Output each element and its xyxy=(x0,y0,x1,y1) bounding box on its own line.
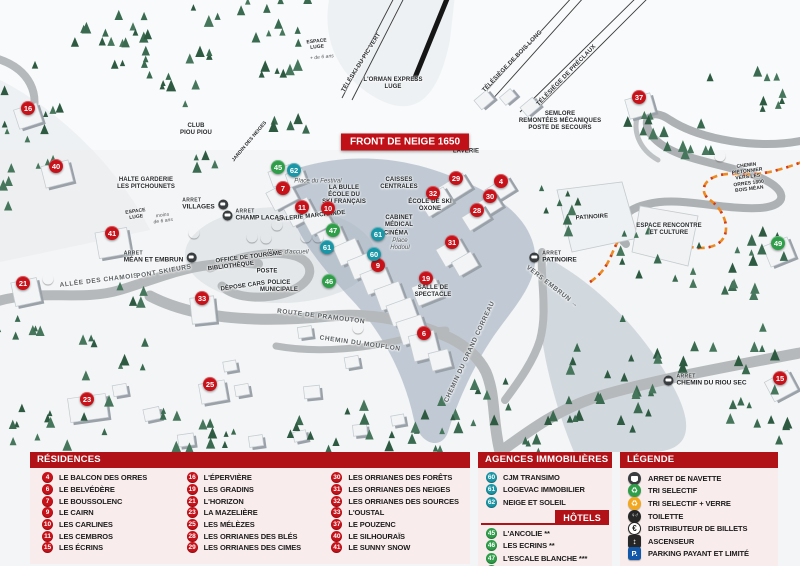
legend-item-label: LOGEVAC IMMOBILIER xyxy=(503,485,585,494)
legend-item-number: 16 xyxy=(187,472,198,483)
legend-item-label: LES ÉCRINS xyxy=(59,543,103,552)
legend-item: 45 L'ANCOLIE ** xyxy=(481,527,609,540)
legend-item-label: TRI SELECTIF + VERRE xyxy=(648,499,731,508)
legend-item: 33 L'OUSTAL xyxy=(322,507,467,519)
hotels-header: HÔTELS xyxy=(481,510,609,525)
legend-item-label: LE BOUSSOLENC xyxy=(59,497,122,506)
agences-panel: AGENCES IMMOBILIÈRES 60 CJM TRANSIMO 61 … xyxy=(478,452,612,566)
legend-icon-item: PARKING PAYANT ET LIMITÉ xyxy=(623,548,775,561)
legend-item-label: LES ORRIANES DES CIMES xyxy=(204,543,301,552)
legend-item: 25 LES MÉLÈZES xyxy=(178,519,323,531)
legend-item-number: 46 xyxy=(486,540,497,551)
legend-item-label: LES CEMBROS xyxy=(59,532,113,541)
legend-item-label: LES ECRINS ** xyxy=(503,541,555,550)
legend-item-label: PARKING PAYANT ET LIMITÉ xyxy=(648,549,749,558)
legend-item: 7 LE BOUSSOLENC xyxy=(33,495,178,507)
bus-icon xyxy=(628,472,641,485)
legend-item: 28 LES ORRIANES DES BLÉS xyxy=(178,530,323,542)
agences-list: 60 CJM TRANSIMO 61 LOGEVAC IMMOBILIER 62… xyxy=(481,471,609,509)
legend-item-label: LES ORRIANES DES NEIGES xyxy=(348,485,450,494)
toilet-icon xyxy=(628,510,641,523)
legend-item-number: 10 xyxy=(42,519,53,530)
legend-item: 41 LE SUNNY SNOW xyxy=(322,542,467,554)
residences-col-2: 16 L'ÉPERVIÈRE 19 LES GRADINS 21 L'HORIZ… xyxy=(178,472,323,559)
legend-item-number: 28 xyxy=(187,531,198,542)
legend-item: 19 LES GRADINS xyxy=(178,484,323,496)
legend-item-label: NEIGE ET SOLEIL xyxy=(503,498,566,507)
legend-item-number: 60 xyxy=(486,472,497,483)
hotels-list: 45 L'ANCOLIE ** 46 LES ECRINS ** 47 L'ES… xyxy=(481,527,609,566)
residences-col-3: 30 LES ORRIANES DES FORÊTS 31 LES ORRIAN… xyxy=(322,472,467,559)
legend-item: 15 LES ÉCRINS xyxy=(33,542,178,554)
legend-item-label: L'ESCALE BLANCHE *** xyxy=(503,554,587,563)
parking-icon xyxy=(628,547,641,560)
legend-item: 4 LE BALCON DES ORRES xyxy=(33,472,178,484)
residences-panel: RÉSIDENCES 4 LE BALCON DES ORRES 6 LE BE… xyxy=(30,452,470,564)
agences-header: AGENCES IMMOBILIÈRES xyxy=(478,452,612,468)
legend-item-label: L'OUSTAL xyxy=(348,508,384,517)
legend-item-number: 32 xyxy=(331,496,342,507)
legend-item-number: 30 xyxy=(331,472,342,483)
legend-icon-item: DISTRIBUTEUR DE BILLETS xyxy=(623,522,775,535)
legend-item-number: 6 xyxy=(42,484,53,495)
legend-item: 30 LES ORRIANES DES FORÊTS xyxy=(322,472,467,484)
legend-item-label: LES CARLINES xyxy=(59,520,113,529)
legend-item-number: 25 xyxy=(187,519,198,530)
legend-item-number: 4 xyxy=(42,472,53,483)
legende-header: LÉGENDE xyxy=(620,452,778,468)
legend-item-number: 37 xyxy=(331,519,342,530)
legende-panel: LÉGENDE ARRET DE NAVETTE TRI SELECTIF TR… xyxy=(620,452,778,566)
legend-item-label: LES ORRIANES DES BLÉS xyxy=(204,532,298,541)
legend-item: 60 CJM TRANSIMO xyxy=(481,471,609,484)
legend-item: 31 LES ORRIANES DES NEIGES xyxy=(322,484,467,496)
legend-item: 32 LES ORRIANES DES SOURCES xyxy=(322,495,467,507)
legend-item-number: 11 xyxy=(42,531,53,542)
recycle-yellow-icon xyxy=(628,497,641,510)
legend-item-label: LE CAIRN xyxy=(59,508,94,517)
legend-item: 6 LE BELVÉDÈRE xyxy=(33,484,178,496)
legend-item: 16 L'ÉPERVIÈRE xyxy=(178,472,323,484)
legend-item: 47 L'ESCALE BLANCHE *** xyxy=(481,552,609,565)
legend-item-number: 9 xyxy=(42,507,53,518)
legend-item-label: LES ORRIANES DES SOURCES xyxy=(348,497,459,506)
legend-item-number: 47 xyxy=(486,553,497,564)
legend-item-number: 29 xyxy=(187,542,198,553)
legend-item-label: TRI SELECTIF xyxy=(648,486,697,495)
legend-item: 10 LES CARLINES xyxy=(33,519,178,531)
legend-item: 29 LES ORRIANES DES CIMES xyxy=(178,542,323,554)
legend-item-label: L'ANCOLIE ** xyxy=(503,529,550,538)
legend-item-label: L'ÉPERVIÈRE xyxy=(204,473,252,482)
legend-item-label: LE BELVÉDÈRE xyxy=(59,485,115,494)
legend-icon-item: ASCENSEUR xyxy=(623,535,775,548)
legend-item-label: LES GRADINS xyxy=(204,485,254,494)
recycle-green-icon xyxy=(628,484,641,497)
legend-icon-item: TRI SELECTIF + VERRE xyxy=(623,497,775,510)
resort-map: TÉLÉSKI DU PIC VERTL'ORMAN EXPRESS LUGET… xyxy=(0,0,800,566)
residences-col-1: 4 LE BALCON DES ORRES 6 LE BELVÉDÈRE 7 L… xyxy=(33,472,178,559)
legend-item-label: ASCENSEUR xyxy=(648,537,694,546)
legend-item-label: LE POUZENC xyxy=(348,520,395,529)
legend-item: 9 LE CAIRN xyxy=(33,507,178,519)
legend-item-number: 41 xyxy=(331,542,342,553)
legend-item-label: LE BALCON DES ORRES xyxy=(59,473,147,482)
hotels-title: HÔTELS xyxy=(555,510,609,525)
legend-item-label: L'HORIZON xyxy=(204,497,244,506)
hotels-divider xyxy=(481,523,555,525)
legend-item: 40 LE SILHOURAÏS xyxy=(322,530,467,542)
legend-item: 37 LE POUZENC xyxy=(322,519,467,531)
legend-item: 23 LA MAZELIÈRE xyxy=(178,507,323,519)
legend-item-number: 15 xyxy=(42,542,53,553)
legend-item: 21 L'HORIZON xyxy=(178,495,323,507)
legend-item-number: 45 xyxy=(486,528,497,539)
legend-item-label: LES ORRIANES DES FORÊTS xyxy=(348,473,452,482)
legend-item-label: DISTRIBUTEUR DE BILLETS xyxy=(648,524,747,533)
legende-list: ARRET DE NAVETTE TRI SELECTIF TRI SELECT… xyxy=(620,468,778,566)
legend-item: 11 LES CEMBROS xyxy=(33,530,178,542)
legend-item-number: 19 xyxy=(187,484,198,495)
legend-icon-item: TOILETTE xyxy=(623,510,775,523)
legend-item-number: 23 xyxy=(187,507,198,518)
legend-icon-item: ARRET DE NAVETTE xyxy=(623,472,775,485)
legend-item: 46 LES ECRINS ** xyxy=(481,539,609,552)
legend-item-number: 21 xyxy=(187,496,198,507)
atm-icon xyxy=(628,522,641,535)
legend-item-label: CJM TRANSIMO xyxy=(503,473,560,482)
legend-item-label: LE SUNNY SNOW xyxy=(348,543,410,552)
legend-item-number: 33 xyxy=(331,507,342,518)
legend-item: 61 LOGEVAC IMMOBILIER xyxy=(481,484,609,497)
legend-item-label: TOILETTE xyxy=(648,512,683,521)
legend-item-label: LE SILHOURAÏS xyxy=(348,532,405,541)
front-de-neige-banner: FRONT DE NEIGE 1650 xyxy=(341,134,469,151)
legend-item-number: 61 xyxy=(486,484,497,495)
legend-item-number: 40 xyxy=(331,531,342,542)
residences-header: RÉSIDENCES xyxy=(30,452,470,468)
legend-item-number: 7 xyxy=(42,496,53,507)
legend-icon-item: TRI SELECTIF xyxy=(623,485,775,498)
legend-item: 62 NEIGE ET SOLEIL xyxy=(481,496,609,509)
elevator-icon xyxy=(628,535,641,548)
legend-item-number: 62 xyxy=(486,497,497,508)
legend-item-label: LES MÉLÈZES xyxy=(204,520,255,529)
legend-item-label: LA MAZELIÈRE xyxy=(204,508,258,517)
legend-item-label: ARRET DE NAVETTE xyxy=(648,474,721,483)
legend-item-number: 31 xyxy=(331,484,342,495)
